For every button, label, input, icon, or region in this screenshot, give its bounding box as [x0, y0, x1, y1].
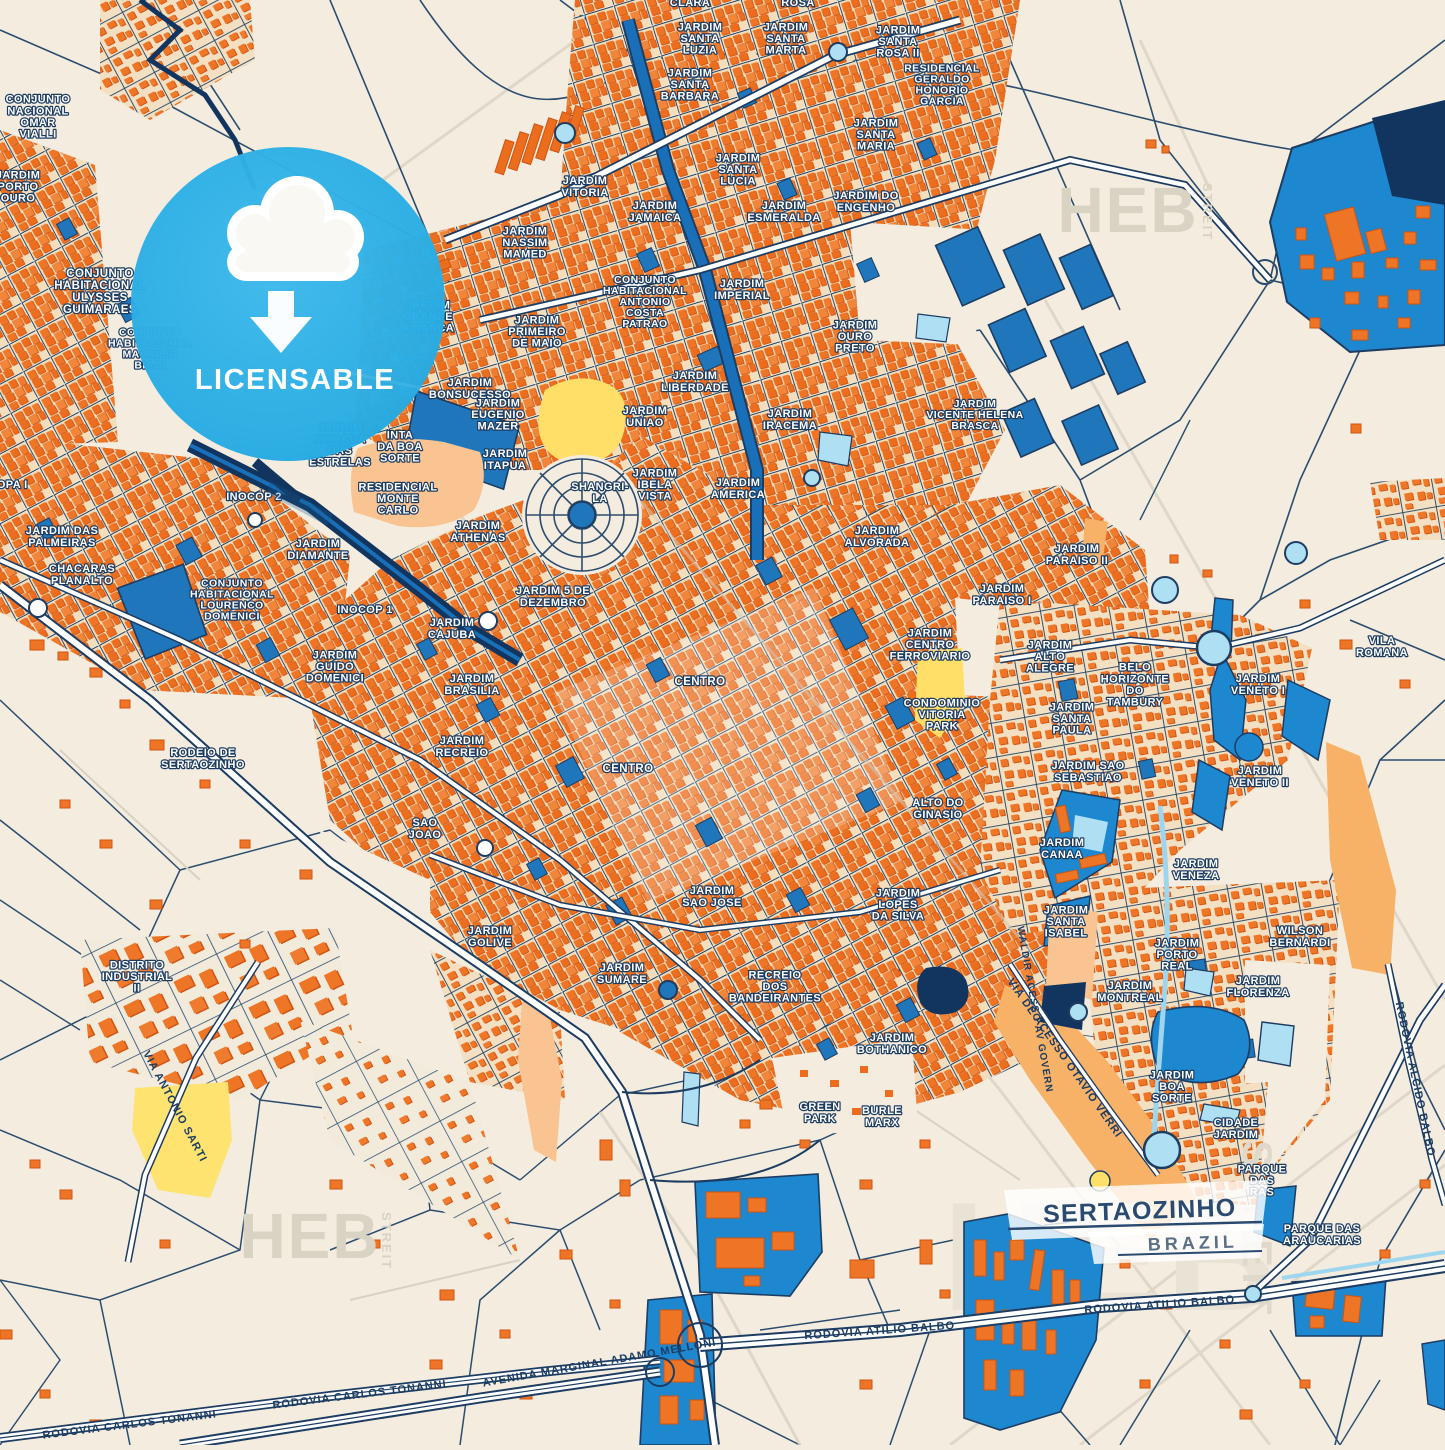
svg-text:JARDIMEUGENIOMAZER: JARDIMEUGENIOMAZER: [471, 397, 525, 432]
svg-text:JARDIMIRACEMA: JARDIMIRACEMA: [763, 408, 817, 432]
svg-text:JARDIMSAO JOSE: JARDIMSAO JOSE: [682, 885, 741, 909]
svg-text:CENTRO: CENTRO: [675, 676, 726, 688]
svg-text:BURLEMARX: BURLEMARX: [862, 1105, 902, 1129]
svg-text:JARDIM DOENGENHO: JARDIM DOENGENHO: [833, 190, 898, 214]
svg-text:JARDIMPARAISO II: JARDIMPARAISO II: [1046, 543, 1108, 567]
svg-text:JARDIMSANTALUCIA: JARDIMSANTALUCIA: [716, 152, 761, 187]
svg-text:JARDIMDIAMANTE: JARDIMDIAMANTE: [287, 538, 348, 562]
svg-text:ALTO DOGINASIO: ALTO DOGINASIO: [912, 797, 963, 821]
svg-text:JARDIMIBELAVISTA: JARDIMIBELAVISTA: [633, 467, 678, 502]
svg-text:JARDIMVENETO I: JARDIMVENETO I: [1231, 673, 1285, 697]
svg-text:JARDIMPORTOREAL: JARDIMPORTOREAL: [1155, 937, 1200, 972]
svg-text:WILSONBERNARDI: WILSONBERNARDI: [1269, 925, 1330, 949]
svg-text:JARDIMCAJUBA: JARDIMCAJUBA: [428, 617, 476, 641]
svg-text:JARDIMRECREIO: JARDIMRECREIO: [436, 735, 489, 759]
svg-text:JARDIMIMPERIAL: JARDIMIMPERIAL: [714, 278, 770, 302]
svg-text:JARDIMVITORIA: JARDIMVITORIA: [561, 175, 608, 199]
svg-text:JARDIMSANTALUZIA: JARDIMSANTALUZIA: [678, 21, 723, 56]
svg-text:JARDIMITAPUA: JARDIMITAPUA: [483, 448, 528, 472]
svg-text:GREENPARK: GREENPARK: [799, 1101, 840, 1125]
svg-text:JARDIMGOLIVE: JARDIMGOLIVE: [468, 925, 513, 949]
svg-text:JARDIMLOPESDA SILVA: JARDIMLOPESDA SILVA: [872, 887, 925, 922]
svg-text:JARDIMSANTAISABEL: JARDIMSANTAISABEL: [1044, 904, 1089, 939]
svg-text:STREIT: STREIT: [1200, 183, 1215, 241]
svg-text:JARDIMFLORENZA: JARDIMFLORENZA: [1226, 975, 1289, 999]
svg-text:SAOJOAO: SAOJOAO: [409, 817, 442, 841]
svg-text:ROSA: ROSA: [781, 0, 814, 9]
svg-text:CIDADEJARDIM: CIDADEJARDIM: [1214, 1117, 1259, 1141]
svg-text:CHACARASPLANALTO: CHACARASPLANALTO: [49, 563, 115, 587]
svg-text:JARDIMJAMAICA: JARDIMJAMAICA: [629, 200, 682, 224]
svg-text:JARDIMSANTAROSA II: JARDIMSANTAROSA II: [876, 24, 921, 59]
svg-text:JARDIMPORTOOURO: JARDIMPORTOOURO: [0, 169, 40, 204]
svg-text:JARDIM DASPALMEIRAS: JARDIM DASPALMEIRAS: [26, 525, 98, 549]
svg-text:JARDIMATHENAS: JARDIMATHENAS: [450, 520, 505, 544]
svg-text:JARDIMSANTAPAULA: JARDIMSANTAPAULA: [1050, 701, 1095, 736]
svg-text:CLARA: CLARA: [670, 0, 711, 9]
svg-text:HEB: HEB: [1057, 174, 1198, 246]
svg-text:JARDIMVENEZA: JARDIMVENEZA: [1172, 858, 1219, 882]
svg-text:ROPA I: ROPA I: [0, 479, 28, 491]
svg-text:STREIT: STREIT: [379, 1212, 394, 1270]
svg-text:JARDIMPARAISO I: JARDIMPARAISO I: [972, 583, 1031, 607]
svg-text:JARDIMAMERICA: JARDIMAMERICA: [711, 477, 765, 501]
svg-text:JARDIMNASSIMMAMED: JARDIMNASSIMMAMED: [502, 225, 547, 260]
svg-text:JARDIMCANAA: JARDIMCANAA: [1040, 837, 1085, 861]
svg-text:JARDIM SAOSEBASTIAO: JARDIM SAOSEBASTIAO: [1051, 760, 1124, 784]
svg-text:JARDIMOUROPRETO: JARDIMOUROPRETO: [833, 319, 878, 354]
svg-text:PARQUE DASARAUCARIAS: PARQUE DASARAUCARIAS: [1283, 1223, 1361, 1247]
svg-text:JARDIMPRIMEIRODE MAIO: JARDIMPRIMEIRODE MAIO: [508, 314, 566, 349]
svg-text:JARDIMBRASILIA: JARDIMBRASILIA: [444, 673, 499, 697]
svg-text:CENTRO: CENTRO: [603, 763, 654, 775]
svg-text:JARDIMUNIAO: JARDIMUNIAO: [623, 405, 668, 429]
svg-text:JARDIMSANTAMARTA: JARDIMSANTAMARTA: [764, 21, 809, 56]
svg-text:LICENSABLE: LICENSABLE: [195, 364, 395, 396]
svg-text:JARDIM 5 DEDEZEMBRO: JARDIM 5 DEDEZEMBRO: [516, 585, 590, 609]
svg-text:JARDIMVENETO II: JARDIMVENETO II: [1231, 765, 1289, 789]
svg-text:RODEIO DESERTAOZINHO: RODEIO DESERTAOZINHO: [161, 747, 245, 771]
svg-text:INOCOP 1: INOCOP 1: [337, 604, 393, 616]
svg-text:HEB: HEB: [239, 1200, 380, 1272]
svg-text:JARDIMSUMARE: JARDIMSUMARE: [597, 962, 647, 986]
svg-text:JARDIMSANTAMARIA: JARDIMSANTAMARIA: [854, 117, 899, 152]
